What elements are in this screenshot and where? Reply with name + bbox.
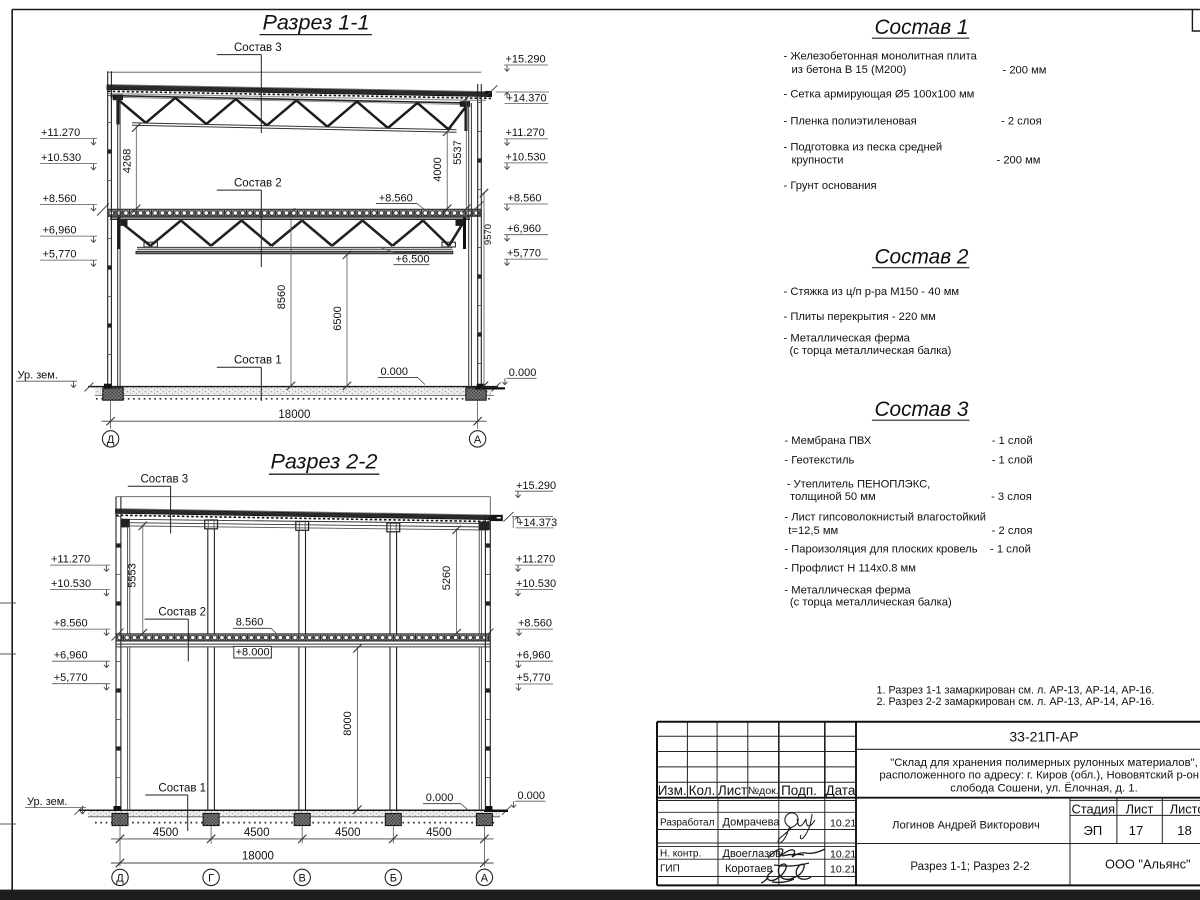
svg-text:- Железобетонная монолитная п: - Железобетонная монолитная плита [784,51,978,63]
svg-text:+15.290: +15.290 [506,54,546,66]
svg-text:Д: Д [107,434,115,446]
svg-text:Состав 1: Состав 1 [158,783,206,795]
svg-text:+14.370: +14.370 [507,92,547,104]
svg-text:ГИП: ГИП [660,864,680,875]
svg-text:- Металлическая ферма: - Металлическая ферма [784,584,911,596]
svg-text:8000: 8000 [342,711,354,735]
svg-text:Разработал: Разработал [660,817,715,829]
svg-text:Разрез 2-2: Разрез 2-2 [271,449,378,473]
svg-text:+11.270: +11.270 [41,127,80,139]
svg-text:0.000: 0.000 [509,367,537,379]
svg-text:толщиной 50 мм: толщиной 50 мм [790,491,876,503]
svg-text:+11.270: +11.270 [516,554,555,566]
svg-text:Б: Б [390,872,397,884]
svg-text:10.21: 10.21 [830,818,856,830]
svg-text:- Пленка полиэтиленовая: - Пленка полиэтиленовая [784,115,917,127]
svg-text:- Грунт основания: - Грунт основания [784,180,877,192]
svg-text:8560: 8560 [276,285,288,309]
svg-text:Н. контр.: Н. контр. [660,849,701,860]
svg-text:+8.000: +8.000 [236,647,270,659]
svg-text:+8.560: +8.560 [508,193,542,205]
svg-text:Изм.: Изм. [658,783,687,798]
svg-text:10.21: 10.21 [830,863,856,875]
svg-text:"Склад для хранения полимерных: "Склад для хранения полимерных рулонных … [890,757,1197,769]
svg-text:+5,770: +5,770 [54,672,88,684]
svg-text:ЭП: ЭП [1083,823,1102,838]
svg-text:+10.530: +10.530 [516,578,556,590]
svg-text:4500: 4500 [244,827,270,839]
svg-text:Д: Д [116,872,124,884]
svg-text:- 3 слоя: - 3 слоя [991,491,1032,503]
svg-text:№док.: №док. [748,785,779,797]
svg-text:+5,770: +5,770 [43,249,77,261]
svg-text:+5,770: +5,770 [517,672,551,684]
svg-text:5260: 5260 [441,566,453,590]
svg-text:- 2 слоя: - 2 слоя [1001,116,1042,128]
svg-text:33-21П-АР: 33-21П-АР [1009,728,1078,744]
svg-text:Состав 2: Состав 2 [875,244,969,268]
svg-text:А: А [474,434,482,446]
svg-text:0.000: 0.000 [518,790,546,802]
svg-text:(с торца металлическая балка): (с торца металлическая балка) [790,597,952,609]
svg-text:6500: 6500 [332,306,344,330]
svg-text:- Профлист Н 114х0.8 мм: - Профлист Н 114х0.8 мм [784,563,916,575]
svg-text:Г: Г [208,872,214,884]
svg-text:Состав 1: Состав 1 [234,355,282,367]
svg-text:- Металлическая ферма: - Металлическая ферма [784,332,911,344]
svg-text:Лист: Лист [1126,801,1154,816]
svg-text:Домрачева: Домрачева [723,817,781,829]
svg-text:t=12,5 мм: t=12,5 мм [788,525,838,537]
svg-text:0.000: 0.000 [381,366,409,378]
svg-text:+6.500: +6.500 [396,253,430,265]
svg-text:+10.530: +10.530 [506,152,546,164]
svg-text:- 1 слой: - 1 слой [992,435,1033,447]
svg-text:10.21: 10.21 [830,848,856,860]
svg-text:0.000: 0.000 [426,792,454,804]
svg-text:Разрез 1-1: Разрез 1-1 [263,11,370,35]
svg-text:+11.270: +11.270 [506,127,545,139]
svg-text:17: 17 [1129,823,1144,838]
svg-text:Ур. зем.: Ур. зем. [18,370,58,382]
svg-text:Состав 3: Состав 3 [875,397,969,421]
svg-text:+10.530: +10.530 [51,578,91,590]
svg-text:2. Разрез 2-2 замаркирован см.: 2. Разрез 2-2 замаркирован см. л. АР-13,… [877,696,1155,708]
svg-text:+8.560: +8.560 [379,192,413,204]
svg-text:Состав 1: Состав 1 [875,15,969,39]
svg-text:- Плиты перекрытия - 220 мм: - Плиты перекрытия - 220 мм [784,311,936,323]
svg-text:- Утеплитель ПЕНОПЛЭКС,: - Утеплитель ПЕНОПЛЭКС, [787,478,931,490]
svg-text:Логинов Андрей Викторович: Логинов Андрей Викторович [892,819,1040,831]
svg-text:4500: 4500 [335,827,361,839]
svg-text:Состав 2: Состав 2 [234,178,282,190]
svg-text:расположенного по адресу: г. К: расположенного по адресу: г. Киров (обл.… [879,770,1200,782]
svg-text:слобода Сошени, ул. Ёлочная, д: слобода Сошени, ул. Ёлочная, д. 1. [950,782,1137,794]
svg-text:Дата: Дата [825,783,855,798]
svg-text:Разрез 1-1; Разрез 2-2: Разрез 1-1; Разрез 2-2 [910,861,1029,873]
svg-text:Подп.: Подп. [781,783,817,798]
svg-text:+6,960: +6,960 [507,223,541,235]
svg-text:8.560: 8.560 [236,617,264,629]
svg-text:+10.530: +10.530 [41,152,81,164]
svg-text:+8.560: +8.560 [518,618,552,630]
svg-text:из бетона В 15 (М200): из бетона В 15 (М200) [792,64,907,76]
svg-text:+6,960: +6,960 [517,650,551,662]
svg-text:Лист: Лист [718,783,747,798]
svg-text:- 1 слой: - 1 слой [990,543,1031,555]
svg-text:- 1 слой: - 1 слой [992,455,1033,467]
svg-text:крупности: крупности [792,154,844,166]
svg-text:5537: 5537 [452,140,464,164]
svg-text:Стадия: Стадия [1071,801,1115,816]
svg-text:- Мембрана ПВХ: - Мембрана ПВХ [784,435,871,447]
svg-text:+8.560: +8.560 [54,618,88,630]
svg-text:+11.270: +11.270 [51,554,90,566]
svg-text:- 200 мм: - 200 мм [997,154,1041,166]
svg-text:Кол.: Кол. [689,783,716,798]
svg-text:- Пароизоляция для плоских кро: - Пароизоляция для плоских кровель [784,543,977,555]
svg-text:- Сетка армирующая Ø5 100х100: - Сетка армирующая Ø5 100х100 мм [784,89,975,101]
svg-text:- Подготовка из песка средней: - Подготовка из песка средней [784,141,943,153]
svg-text:4268: 4268 [122,149,134,173]
svg-text:9570: 9570 [483,224,494,245]
svg-text:5553: 5553 [126,563,138,587]
svg-text:+6,960: +6,960 [43,225,77,237]
svg-text:18: 18 [1177,823,1192,838]
svg-text:+6,960: +6,960 [54,650,88,662]
svg-text:4000: 4000 [432,157,444,181]
svg-text:Листов: Листов [1170,801,1200,816]
svg-text:Коротаев: Коротаев [725,863,773,875]
svg-text:+5,770: +5,770 [507,248,541,260]
svg-text:- 2 слоя: - 2 слоя [992,525,1033,537]
svg-text:18000: 18000 [278,409,310,421]
svg-text:А: А [481,872,489,884]
svg-text:В: В [299,872,306,884]
svg-text:ООО "Альянс": ООО "Альянс" [1105,857,1191,872]
svg-text:+14.373: +14.373 [517,517,557,529]
svg-text:Ур. зем.: Ур. зем. [27,796,67,808]
svg-text:(с торца металлическая балка): (с торца металлическая балка) [790,345,952,357]
svg-text:Состав 3: Состав 3 [141,474,189,486]
svg-text:4500: 4500 [426,827,452,839]
svg-text:Состав 3: Состав 3 [234,42,282,54]
svg-text:- Лист гипсоволокнистый влагос: - Лист гипсоволокнистый влагостойкий [784,512,986,524]
svg-text:- Геотекстиль: - Геотекстиль [784,455,854,467]
svg-text:- 200 мм: - 200 мм [1003,64,1047,76]
svg-text:Состав 2: Состав 2 [158,607,206,619]
svg-text:18000: 18000 [242,851,274,863]
svg-text:1. Разрез 1-1 замаркирован см.: 1. Разрез 1-1 замаркирован см. л. АР-13,… [877,685,1155,697]
svg-text:4500: 4500 [153,827,179,839]
svg-text:- Стяжка из ц/п р-ра М150 - 40: - Стяжка из ц/п р-ра М150 - 40 мм [784,286,960,298]
svg-text:+8.560: +8.560 [43,193,77,205]
svg-text:+15.290: +15.290 [516,480,556,492]
